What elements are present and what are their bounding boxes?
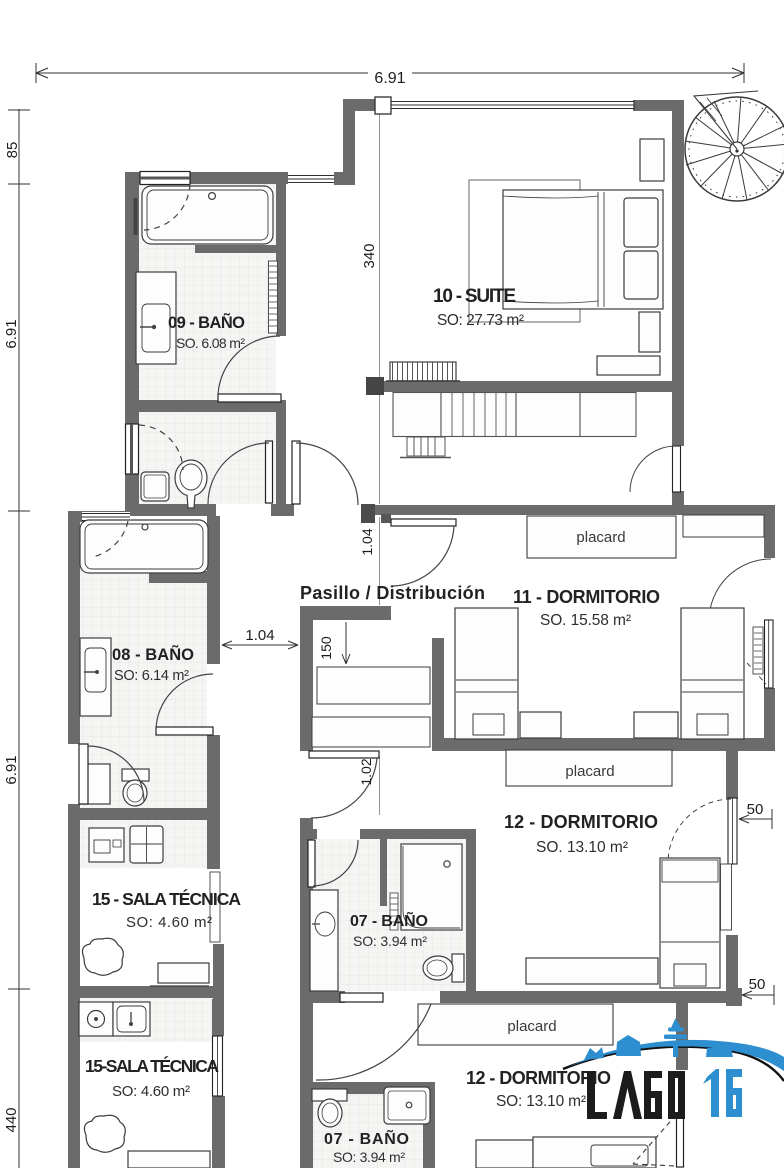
svg-text:6.91: 6.91 [3, 319, 20, 348]
svg-text:SO: 4.60 m²: SO: 4.60 m² [126, 914, 212, 931]
svg-text:150: 150 [318, 636, 334, 660]
svg-text:SO. 6.08 m²: SO. 6.08 m² [176, 335, 245, 351]
svg-text:SO. 15.58 m²: SO. 15.58 m² [540, 612, 631, 629]
svg-text:SO. 13.10 m²: SO. 13.10 m² [536, 839, 628, 856]
svg-text:85: 85 [4, 142, 21, 159]
svg-text:6.91: 6.91 [374, 70, 405, 87]
svg-text:SO: 27.73 m²: SO: 27.73 m² [437, 312, 524, 329]
svg-text:08 - BAÑO: 08 - BAÑO [112, 644, 194, 664]
svg-text:09 - BAÑO: 09 - BAÑO [168, 312, 245, 332]
svg-text:SO: 6.14 m²: SO: 6.14 m² [114, 668, 189, 684]
svg-text:6.91: 6.91 [3, 755, 20, 784]
svg-text:1.04: 1.04 [245, 627, 274, 644]
svg-text:placard: placard [507, 1018, 556, 1035]
svg-text:1.04: 1.04 [359, 528, 375, 555]
svg-text:15-SALA TÉCNICA: 15-SALA TÉCNICA [85, 1055, 219, 1076]
svg-text:07 - BAÑO: 07 - BAÑO [324, 1128, 409, 1148]
svg-text:SO: 4.60 m²: SO: 4.60 m² [112, 1083, 190, 1100]
svg-text:placard: placard [565, 763, 614, 780]
svg-text:440: 440 [3, 1107, 20, 1132]
svg-text:SO: 3.94 m²: SO: 3.94 m² [333, 1149, 405, 1165]
svg-text:07 - BAÑO: 07 - BAÑO [350, 910, 428, 930]
svg-text:12 - DORMITORIO: 12 - DORMITORIO [504, 812, 658, 832]
svg-text:SO: 13.10 m²: SO: 13.10 m² [496, 1093, 586, 1110]
svg-text:SO: 3.94 m²: SO: 3.94 m² [353, 933, 427, 949]
svg-text:340: 340 [361, 243, 378, 268]
svg-text:Pasillo / Distribución: Pasillo / Distribución [300, 583, 485, 603]
svg-text:1.02: 1.02 [358, 758, 374, 785]
svg-text:11 - DORMITORIO: 11 - DORMITORIO [513, 587, 660, 607]
svg-text:50: 50 [747, 801, 764, 818]
svg-text:15 - SALA TÉCNICA: 15 - SALA TÉCNICA [92, 888, 241, 909]
svg-text:10 - SUITE: 10 - SUITE [433, 286, 516, 307]
svg-text:placard: placard [576, 529, 625, 546]
svg-text:50: 50 [749, 976, 766, 993]
